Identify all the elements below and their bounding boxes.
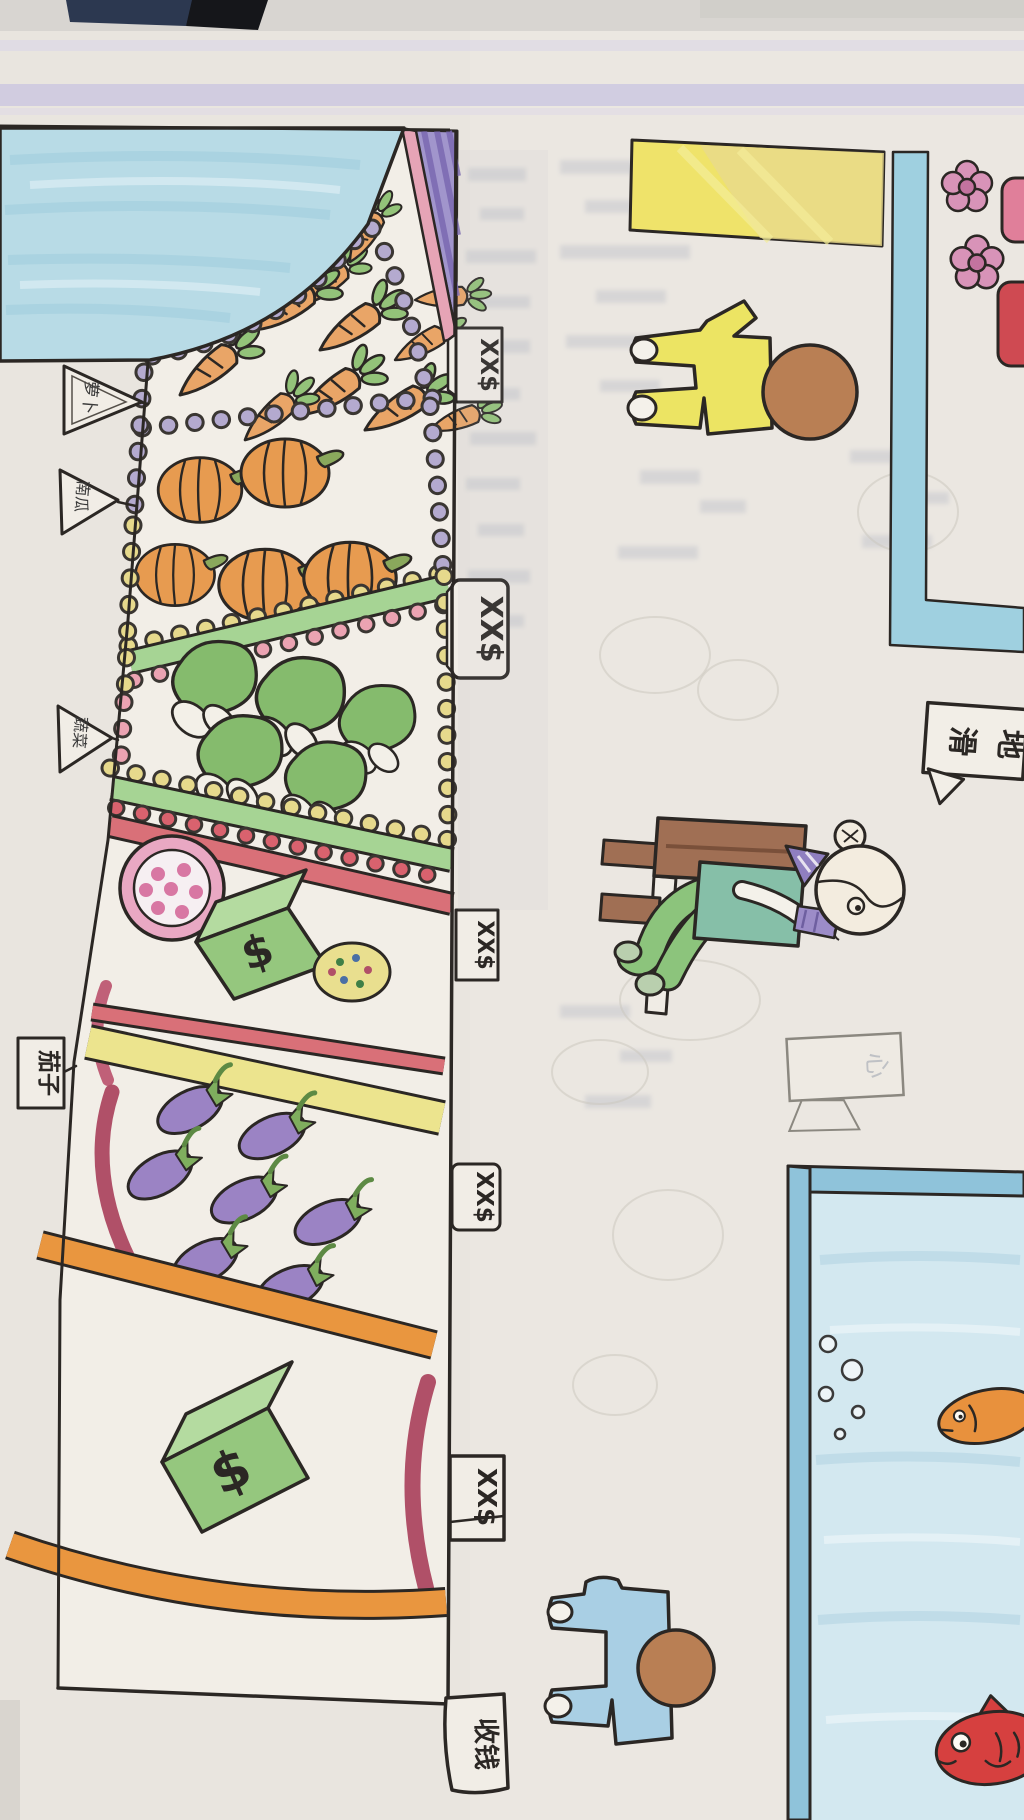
small-plate <box>314 943 390 1001</box>
shoe <box>545 1695 571 1717</box>
shoe <box>628 396 656 420</box>
svg-text:XX$: XX$ <box>471 1171 497 1222</box>
fish-tank <box>788 1166 1024 1820</box>
price-tag: XX$ <box>450 1456 504 1540</box>
price-tag: XX$ <box>456 910 498 980</box>
tank-border-left <box>788 1166 810 1820</box>
faint-sign-char: 心 <box>860 1052 891 1080</box>
table-leg <box>602 840 660 868</box>
granny-shoe <box>636 973 664 995</box>
cashier-tag: 收钱 <box>445 1694 508 1793</box>
floor-sign-char: 地 <box>991 728 1024 760</box>
paper-shadow <box>458 150 548 910</box>
shopper-head <box>638 1630 714 1706</box>
shopper-head <box>763 345 857 439</box>
pennant-label: 萝卜 <box>78 380 101 416</box>
svg-text:XX$: XX$ <box>472 920 497 969</box>
page-edge <box>0 1700 20 1820</box>
red-pot <box>998 282 1024 366</box>
eggplant-tag-label: 茄子 <box>35 1050 62 1096</box>
pennant-label: 南瓜 <box>71 480 93 514</box>
tank-border-top <box>788 1166 1024 1196</box>
floor-sign-char: 滑 <box>943 725 980 757</box>
pink-pot <box>1002 178 1024 242</box>
price-tag: XX$ <box>452 1164 500 1230</box>
shoe <box>548 1602 572 1622</box>
pennant-label: 蔬菜 <box>69 716 91 750</box>
dark-object <box>66 0 196 26</box>
photo-background-strip <box>0 0 1024 31</box>
yellow-banner <box>630 140 884 246</box>
photographed-drawing: $ $ <box>0 0 1024 1820</box>
svg-text:XX$: XX$ <box>471 1468 501 1526</box>
svg-text:收钱: 收钱 <box>470 1718 500 1770</box>
granny-shoe <box>615 942 641 962</box>
shoe <box>631 339 657 361</box>
dark-object <box>186 0 268 30</box>
